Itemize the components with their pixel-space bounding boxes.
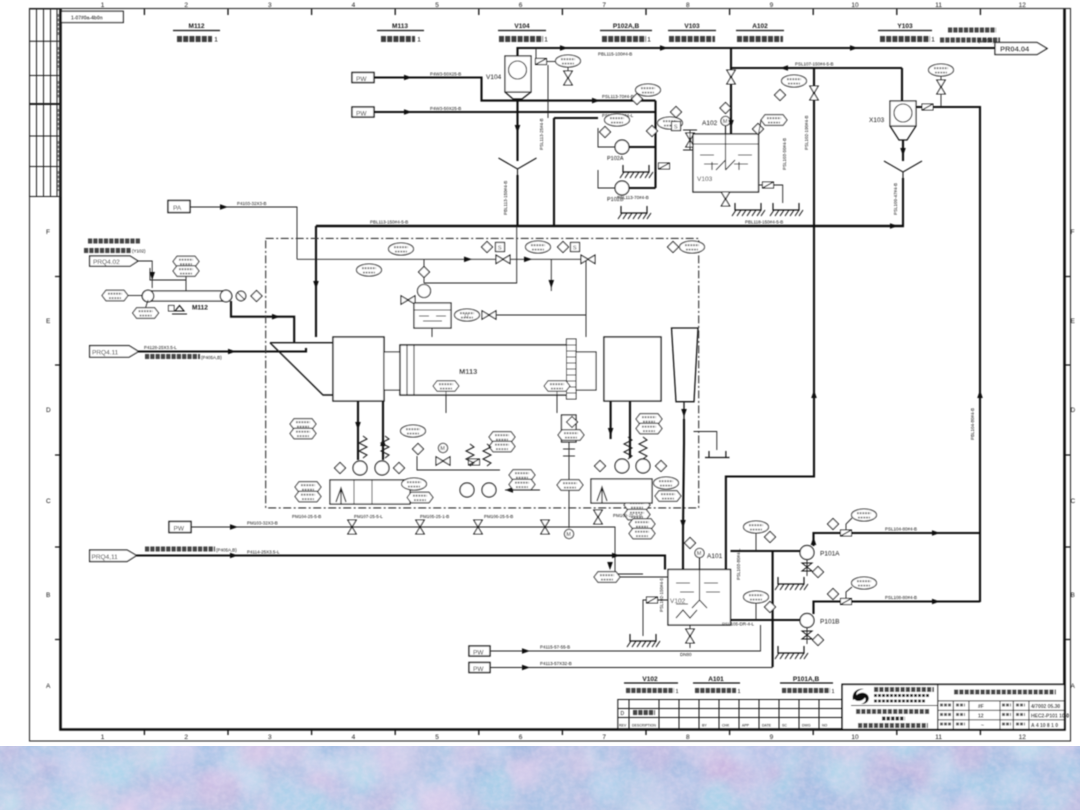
svg-text:11: 11 <box>935 734 942 741</box>
svg-text:PA: PA <box>173 205 182 212</box>
svg-text:P102A,B: P102A,B <box>613 23 640 30</box>
svg-text:9: 9 <box>770 734 774 741</box>
svg-text:X103: X103 <box>869 117 885 124</box>
svg-text:10: 10 <box>851 2 859 9</box>
svg-text:8: 8 <box>686 2 690 9</box>
svg-text:V104: V104 <box>514 23 530 30</box>
svg-text:PR04.04: PR04.04 <box>1000 45 1030 54</box>
svg-text:REV: REV <box>619 724 627 728</box>
svg-text:PBL113-150#4-B: PBL113-150#4-B <box>503 181 508 215</box>
svg-text:5: 5 <box>435 734 439 741</box>
svg-text:12: 12 <box>1019 734 1027 741</box>
svg-text:1: 1 <box>675 689 678 695</box>
svg-text:V103: V103 <box>684 23 700 30</box>
svg-text:A 4 10 8 1 0: A 4 10 8 1 0 <box>1031 723 1058 729</box>
svg-text:(P405A,B): (P405A,B) <box>201 355 222 360</box>
svg-text:P4128-25X3.5-L: P4128-25X3.5-L <box>144 345 177 350</box>
svg-text:Y103: Y103 <box>897 23 913 30</box>
svg-text:PBL115-100#4-B: PBL115-100#4-B <box>598 52 632 57</box>
svg-text:E: E <box>1071 318 1076 325</box>
svg-text:B: B <box>46 592 50 599</box>
svg-text:2: 2 <box>184 2 188 9</box>
svg-text:BY: BY <box>702 724 707 728</box>
svg-text:M112: M112 <box>189 23 205 30</box>
svg-text:SC: SC <box>782 724 787 728</box>
svg-text:1: 1 <box>544 37 548 44</box>
svg-text:11: 11 <box>935 2 942 9</box>
svg-text:P102B: P102B <box>607 197 624 203</box>
svg-text:PM106-25-5-B: PM106-25-5-B <box>484 514 513 519</box>
svg-text:B: B <box>1071 592 1075 599</box>
svg-text:PW: PW <box>473 666 484 673</box>
svg-text:M112: M112 <box>192 305 208 312</box>
svg-text:HEC2-P101 10-0: HEC2-P101 10-0 <box>1031 714 1069 720</box>
svg-text:PSL103-50#4-B: PSL103-50#4-B <box>782 138 787 170</box>
svg-text:P4W3-50X25-B: P4W3-50X25-B <box>430 106 461 111</box>
svg-text:PSL113-25#4-B: PSL113-25#4-B <box>539 118 544 150</box>
svg-text:DWG: DWG <box>802 724 811 728</box>
svg-text:PRQ4,11: PRQ4,11 <box>92 554 119 561</box>
svg-text:PBL113-150#4-5-B: PBL113-150#4-5-B <box>370 220 408 225</box>
svg-text:F: F <box>46 229 50 236</box>
svg-text:V103: V103 <box>697 176 713 183</box>
svg-text:PW: PW <box>356 110 367 117</box>
svg-text:U: U <box>465 314 469 320</box>
svg-text:P4W3-50X25-B: P4W3-50X25-B <box>430 72 461 77</box>
svg-text:A: A <box>46 683 51 690</box>
svg-text:NO: NO <box>822 724 828 728</box>
svg-text:(V104): (V104) <box>978 39 995 45</box>
svg-text:PBL104-80#4-B: PBL104-80#4-B <box>970 408 975 440</box>
svg-text:7: 7 <box>602 2 606 9</box>
svg-text:PM109-25-3-B: PM109-25-3-B <box>613 513 642 518</box>
svg-text:P101B: P101B <box>820 619 840 626</box>
svg-text:D: D <box>621 711 625 717</box>
svg-text:P101A,B: P101A,B <box>793 676 820 683</box>
svg-text:DN80: DN80 <box>680 652 692 657</box>
svg-text:3: 3 <box>268 2 272 9</box>
svg-text:A102: A102 <box>752 23 768 30</box>
svg-text:10: 10 <box>851 734 859 741</box>
svg-text:M113: M113 <box>392 23 408 30</box>
svg-text:A101: A101 <box>708 676 724 683</box>
svg-text:PSL103-80#4-L: PSL103-80#4-L <box>736 548 741 580</box>
svg-text:P4114-25X3.5-L: P4114-25X3.5-L <box>247 550 280 555</box>
svg-text:APP: APP <box>742 724 750 728</box>
svg-text:PW: PW <box>473 649 484 656</box>
svg-text:1: 1 <box>831 689 834 695</box>
svg-text:P4115-57-55-B: P4115-57-55-B <box>540 645 570 650</box>
svg-text:2: 2 <box>184 734 188 741</box>
svg-text:DATE: DATE <box>762 724 772 728</box>
svg-text:3: 3 <box>268 734 272 741</box>
svg-text:5: 5 <box>435 2 439 9</box>
svg-text:PW: PW <box>356 76 367 83</box>
svg-text:F: F <box>1071 229 1075 236</box>
svg-text:4: 4 <box>352 734 356 741</box>
svg-text:PRQ4.02: PRQ4.02 <box>93 259 120 266</box>
svg-text:1: 1 <box>417 37 421 44</box>
svg-text:D: D <box>1071 407 1076 414</box>
svg-text:A102: A102 <box>702 120 718 127</box>
svg-text:C: C <box>46 498 51 505</box>
svg-text:9: 9 <box>770 2 774 9</box>
svg-text:(P405A,B): (P405A,B) <box>216 548 237 553</box>
svg-text:8: 8 <box>686 734 690 741</box>
svg-text:V102: V102 <box>642 676 658 683</box>
svg-text:PSL107-150#4-5-B: PSL107-150#4-5-B <box>795 62 834 67</box>
svg-text:DESCRIPTION: DESCRIPTION <box>632 724 656 728</box>
svg-text:D: D <box>46 407 51 414</box>
svg-text:PM104-25-5-B: PM104-25-5-B <box>292 514 321 519</box>
svg-text:A: A <box>1071 683 1076 690</box>
svg-text:6: 6 <box>519 2 523 9</box>
svg-text:PSL102-150#4-5: PSL102-150#4-5 <box>659 577 664 612</box>
svg-text:PSL105-DR-4-L: PSL105-DR-4-L <box>722 622 755 627</box>
svg-text:PBL118-150#4-5-B: PBL118-150#4-5-B <box>745 220 783 225</box>
svg-text:V104: V104 <box>486 74 502 81</box>
svg-text:C: C <box>1071 498 1076 505</box>
svg-text:P102A: P102A <box>607 156 624 162</box>
svg-text:1: 1 <box>214 37 218 44</box>
svg-text:12: 12 <box>978 714 984 720</box>
svg-text:12: 12 <box>1019 2 1027 9</box>
svg-text:PSL109-47#4-B: PSL109-47#4-B <box>893 183 898 215</box>
svg-text:1-07#0a-4b0n: 1-07#0a-4b0n <box>71 16 103 22</box>
svg-text:PSL102-190#4-B: PSL102-190#4-B <box>804 115 809 150</box>
svg-text:1: 1 <box>101 2 105 9</box>
svg-text:V102: V102 <box>670 598 686 605</box>
svg-text:PM105-25-1-B: PM105-25-1-B <box>420 514 449 519</box>
svg-text:P4103-32X3-B: P4103-32X3-B <box>237 201 267 206</box>
svg-text:~: ~ <box>981 723 984 729</box>
svg-text:PM107-25-5-L: PM107-25-5-L <box>354 514 383 519</box>
svg-text:1: 1 <box>101 734 105 741</box>
svg-text:A101: A101 <box>707 553 723 560</box>
svg-text:E: E <box>46 318 51 325</box>
svg-text:PRQ4.11: PRQ4.11 <box>92 350 119 357</box>
svg-text:1: 1 <box>647 37 651 44</box>
svg-text:PSL104-80#4-B: PSL104-80#4-B <box>885 527 917 532</box>
svg-text:4: 4 <box>352 2 356 9</box>
svg-text:PM103-32X3-B: PM103-32X3-B <box>247 521 278 526</box>
svg-text:P101A: P101A <box>820 551 840 558</box>
svg-text:1: 1 <box>737 689 740 695</box>
svg-text:4/7002 05.30: 4/7002 05.30 <box>1031 704 1060 710</box>
svg-text:PSL108-80#4-B: PSL108-80#4-B <box>885 595 917 600</box>
svg-text:PW: PW <box>174 526 185 533</box>
svg-text:#F: #F <box>978 704 984 710</box>
svg-text:P4113-57X32-B: P4113-57X32-B <box>540 661 572 666</box>
svg-text:7: 7 <box>602 734 606 741</box>
svg-text:CHK: CHK <box>722 724 730 728</box>
svg-text:1: 1 <box>931 37 935 44</box>
svg-text:(Y102): (Y102) <box>132 249 146 254</box>
svg-text:M113: M113 <box>459 367 477 376</box>
svg-text:PSL113-70#4-B: PSL113-70#4-B <box>602 94 634 99</box>
svg-text:6: 6 <box>519 734 523 741</box>
